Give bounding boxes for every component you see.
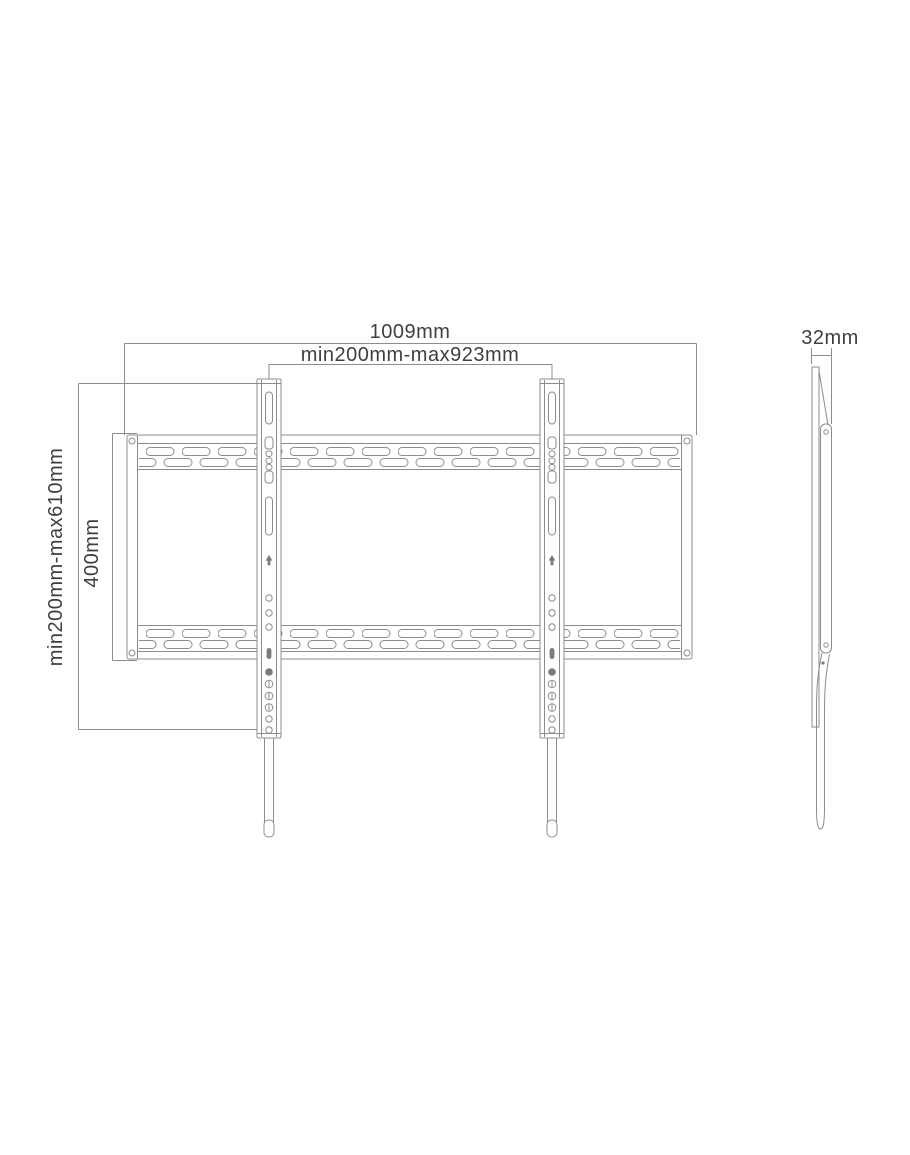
dim-vesa-width-range-label: min200mm-max923mm	[301, 344, 520, 366]
wall-plate	[127, 435, 692, 659]
mount-screw-hole	[129, 650, 135, 656]
mount-screw-hole	[129, 438, 135, 444]
vesa-rail-left	[257, 379, 281, 837]
technical-drawing: 1009mm min200mm-max923mm min200mm-max610…	[0, 0, 910, 1155]
mount-screw-hole	[684, 438, 690, 444]
dim-vesa-width-range: min200mm-max923mm	[269, 344, 552, 386]
dim-profile-depth-label: 32mm	[801, 327, 859, 349]
mount-screw-hole	[684, 650, 690, 656]
bottom-slot-band	[138, 626, 681, 652]
vesa-rail-right	[540, 379, 564, 837]
dim-plate-height-label: 400mm	[81, 518, 103, 587]
side-rail-profile	[821, 424, 832, 653]
dim-total-width: 1009mm	[125, 321, 697, 435]
side-wall-plate-profile	[812, 367, 819, 727]
dim-total-width-label: 1009mm	[370, 321, 451, 343]
side-hanger-strap	[817, 653, 830, 829]
drawing-canvas: 1009mm min200mm-max923mm min200mm-max610…	[0, 0, 910, 1155]
front-view	[127, 379, 692, 837]
side-view	[812, 367, 832, 829]
top-slot-band	[138, 444, 681, 470]
dim-vesa-height-range-label: min200mm-max610mm	[45, 448, 67, 667]
dim-profile-depth: 32mm	[801, 327, 859, 424]
